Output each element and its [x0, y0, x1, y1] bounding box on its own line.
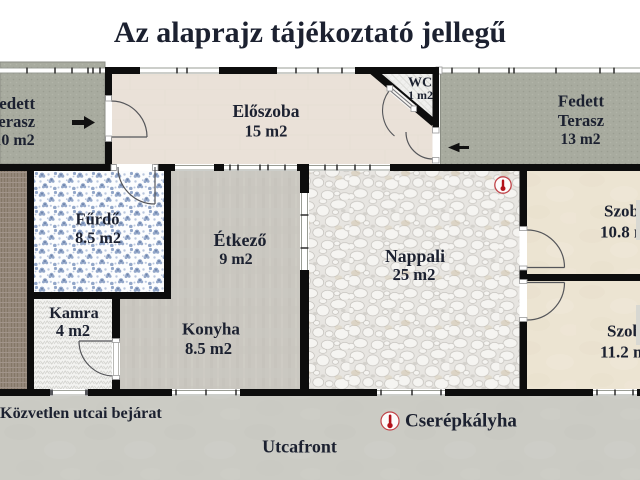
svg-text:Étkező: Étkező: [214, 229, 267, 250]
svg-text:Szoba: Szoba: [607, 322, 640, 341]
svg-text:Fedett: Fedett: [558, 92, 605, 111]
svg-text:Az alaprajz tájékoztató jelleg: Az alaprajz tájékoztató jellegű: [114, 16, 506, 49]
svg-text:15 m2: 15 m2: [245, 122, 288, 141]
svg-text:Kamra: Kamra: [49, 304, 98, 322]
svg-text:4 m2: 4 m2: [56, 321, 90, 340]
svg-text:10.8 m2: 10.8 m2: [600, 223, 640, 242]
svg-text:Terasz: Terasz: [0, 112, 35, 131]
svg-text:Fedett: Fedett: [0, 94, 35, 113]
svg-text:Konyha: Konyha: [182, 320, 240, 339]
svg-text:Szoba: Szoba: [604, 202, 640, 221]
svg-text:Előszoba: Előszoba: [232, 101, 299, 121]
svg-text:Cserépkályha: Cserépkályha: [405, 411, 517, 432]
svg-text:Nappali: Nappali: [385, 246, 445, 266]
svg-text:Közvetlen utcai bejárat: Közvetlen utcai bejárat: [0, 404, 162, 422]
svg-text:Utcafront: Utcafront: [262, 437, 337, 457]
svg-text:8.5 m2: 8.5 m2: [185, 339, 232, 358]
svg-text:Terasz: Terasz: [558, 111, 604, 130]
svg-text:25 m2: 25 m2: [393, 265, 436, 284]
svg-text:Fűrdő: Fűrdő: [75, 210, 119, 229]
svg-text:13 m2: 13 m2: [560, 131, 600, 148]
svg-text:10 m2: 10 m2: [0, 132, 35, 149]
svg-text:8.5 m2: 8.5 m2: [75, 229, 121, 247]
svg-text:11.2 m2: 11.2 m2: [600, 343, 640, 362]
svg-text:9 m2: 9 m2: [219, 251, 252, 268]
